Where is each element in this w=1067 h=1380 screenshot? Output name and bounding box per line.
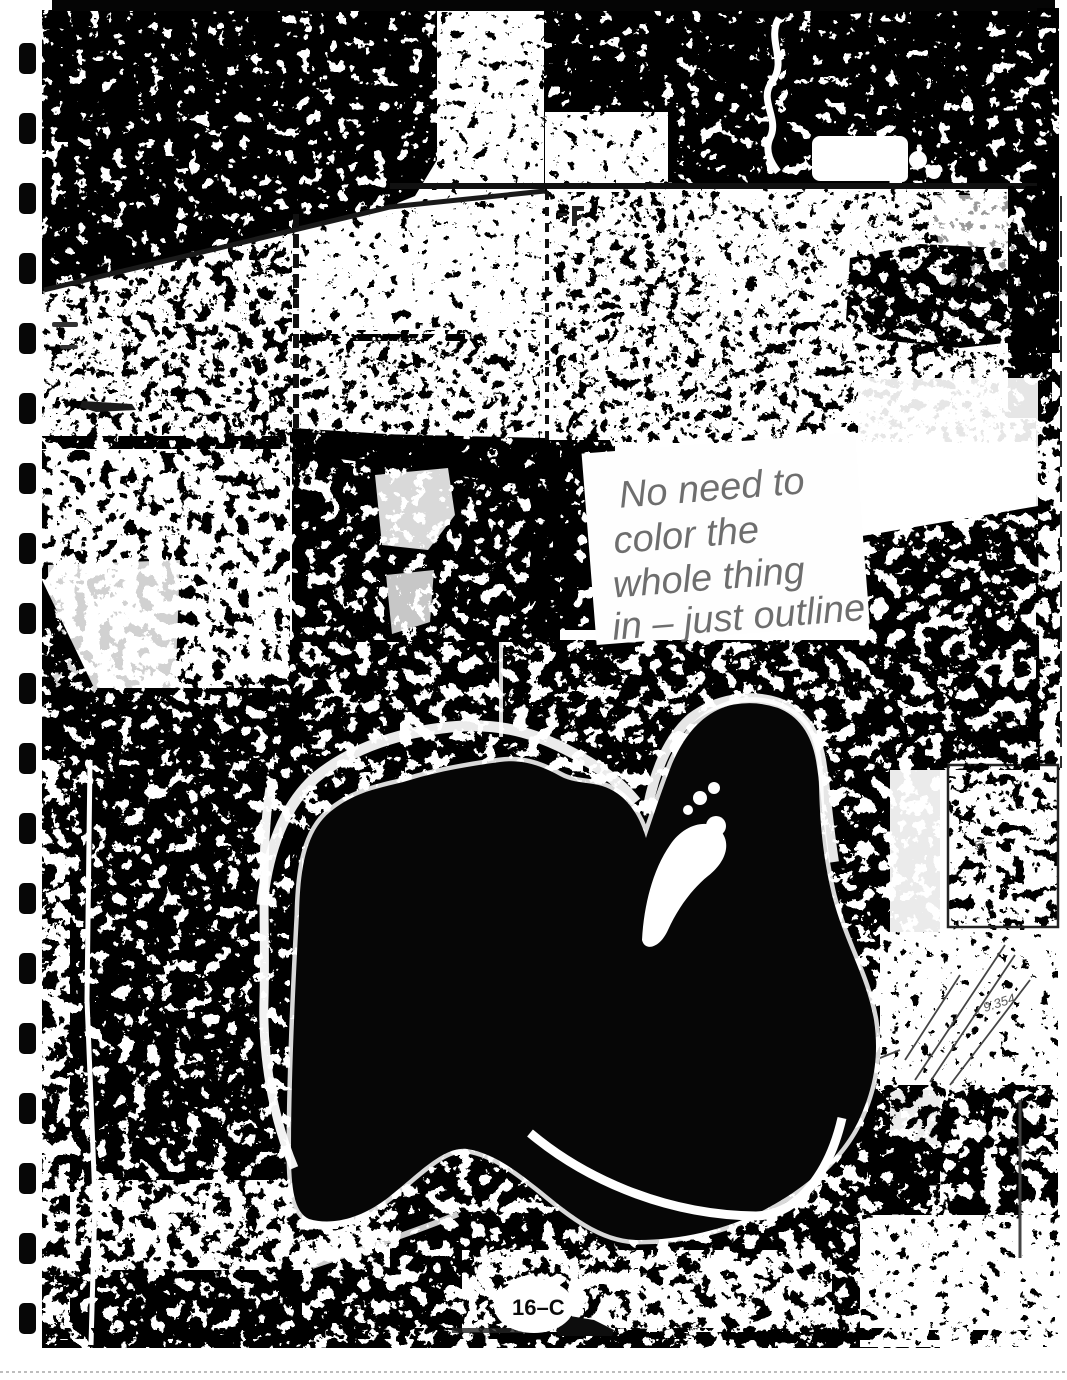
svg-text:16–C: 16–C — [512, 1295, 565, 1320]
